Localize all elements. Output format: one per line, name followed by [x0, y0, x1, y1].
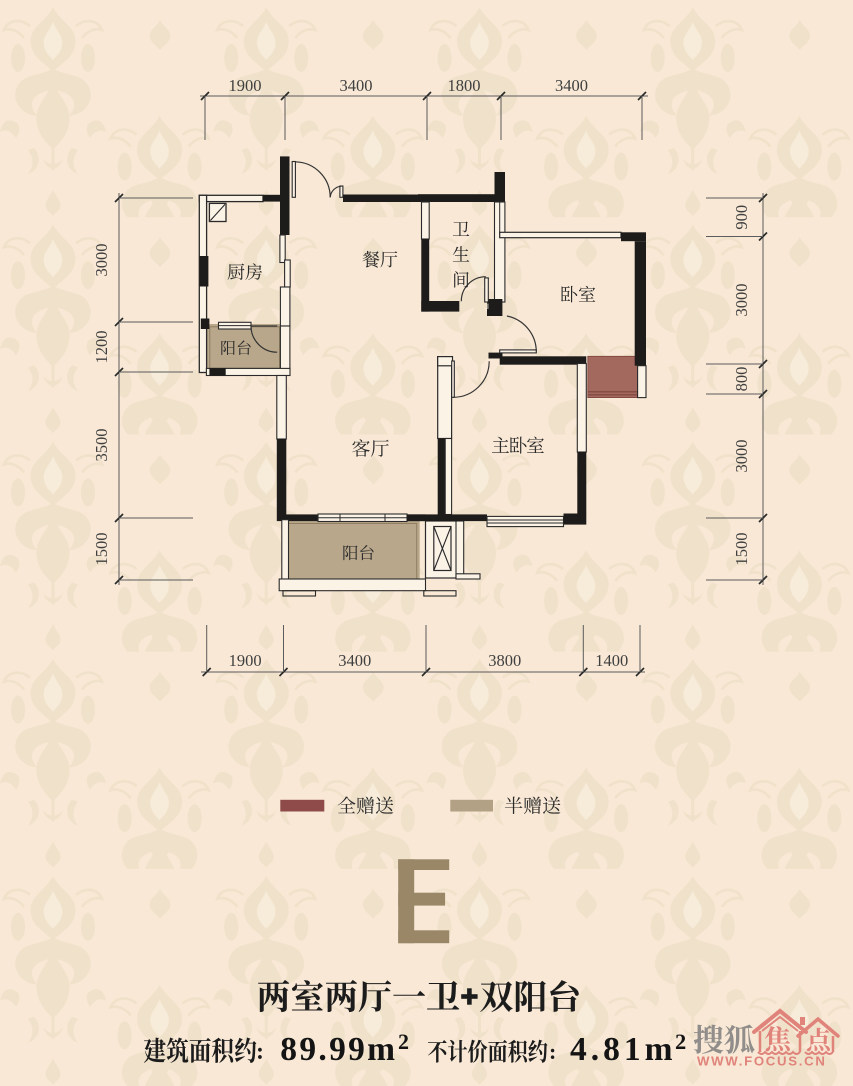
- svg-text:3500: 3500: [92, 429, 111, 462]
- svg-text:1400: 1400: [595, 651, 628, 670]
- svg-text:1900: 1900: [229, 76, 262, 95]
- svg-text:WWW.FOCUS.CN: WWW.FOCUS.CN: [697, 1054, 827, 1069]
- svg-text:800: 800: [732, 367, 751, 392]
- svg-text::: :: [549, 1039, 556, 1064]
- svg-text:1900: 1900: [229, 651, 262, 670]
- svg-text:89.99m: 89.99m: [280, 1031, 397, 1068]
- svg-text:3400: 3400: [338, 651, 371, 670]
- svg-text:1500: 1500: [92, 533, 111, 566]
- svg-text:3000: 3000: [92, 244, 111, 277]
- svg-text:3000: 3000: [732, 284, 751, 317]
- svg-text:3800: 3800: [488, 651, 521, 670]
- svg-text:900: 900: [732, 205, 751, 230]
- svg-text::: :: [256, 1039, 264, 1065]
- svg-text:1800: 1800: [448, 76, 481, 95]
- svg-text:1500: 1500: [732, 533, 751, 566]
- svg-text:3400: 3400: [340, 76, 373, 95]
- svg-text:3400: 3400: [555, 76, 588, 95]
- svg-text:3000: 3000: [732, 440, 751, 473]
- svg-text:1200: 1200: [92, 331, 111, 364]
- svg-text:4.81m: 4.81m: [570, 1031, 677, 1068]
- svg-text:2: 2: [398, 1029, 409, 1054]
- svg-text:2: 2: [675, 1029, 686, 1054]
